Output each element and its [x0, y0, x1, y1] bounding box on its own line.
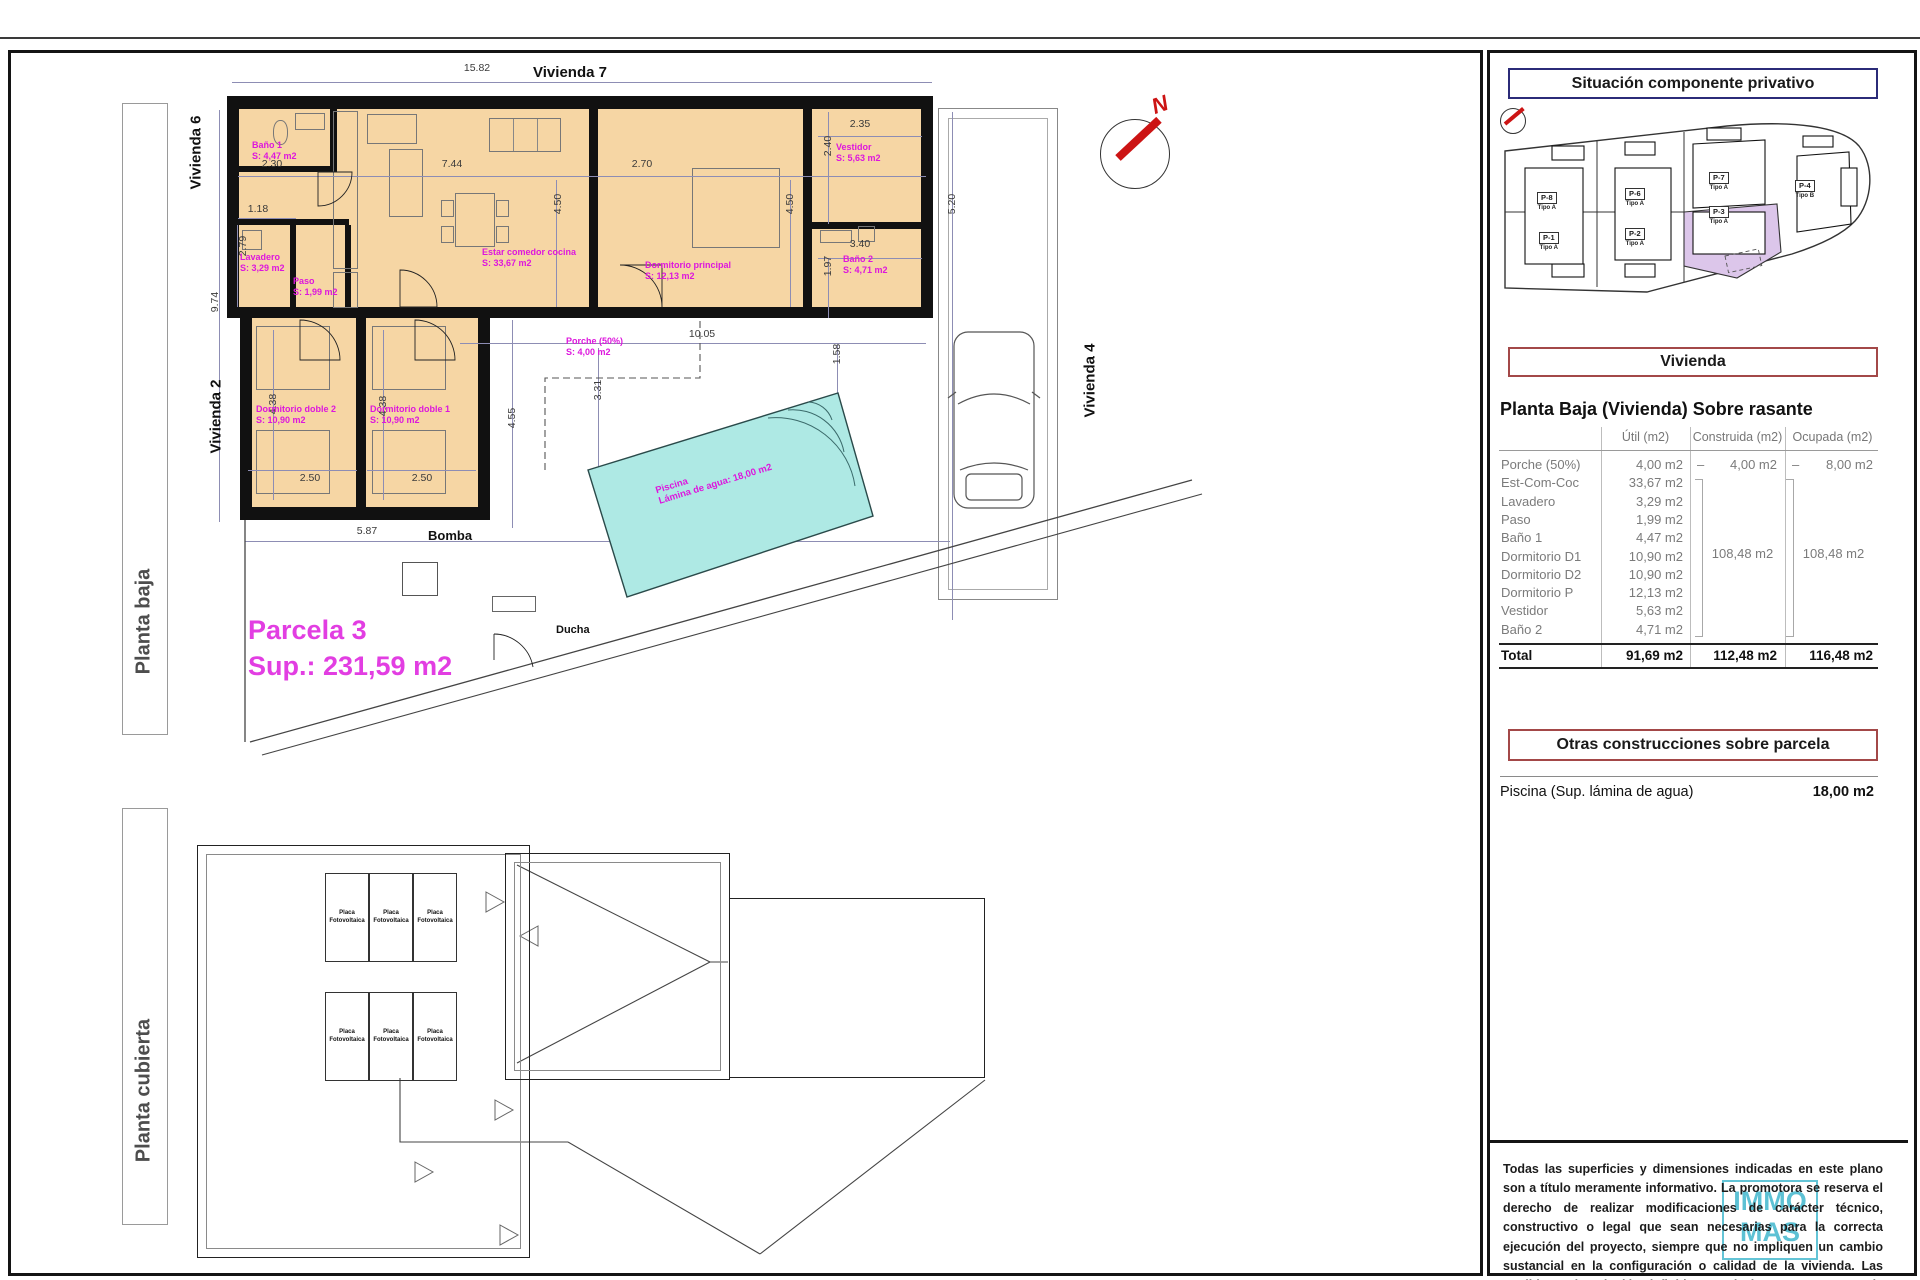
room-area: S: 10,90 m2 — [370, 415, 450, 426]
table-row-name: Dormitorio P — [1501, 585, 1573, 600]
sofa — [489, 118, 561, 152]
room-area: S: 5,63 m2 — [836, 153, 881, 164]
total-bottom-line — [1499, 667, 1878, 669]
parcel-tipo: Tipo A — [1709, 185, 1729, 191]
room-name: Estar comedor cocina — [482, 247, 576, 258]
room-area: S: 4,71 m2 — [843, 265, 888, 276]
table-row-util: 3,29 m2 — [1603, 494, 1683, 509]
table-row-ocupada: 8,00 m2 — [1790, 457, 1873, 472]
table-row-name: Dormitorio D2 — [1501, 567, 1581, 582]
parcel-label-p-3: P-3Tipo A — [1709, 202, 1729, 225]
dining-table — [455, 193, 495, 247]
neighbor-label-vivienda-6: Vivienda 6 — [188, 98, 205, 208]
room-label: VestidorS: 5,63 m2 — [836, 142, 881, 164]
room-area: S: 4,00 m2 — [566, 347, 623, 358]
solar-panel-label: PlacaFotovoltaica — [329, 910, 364, 926]
neighbor-label-vivienda-4: Vivienda 4 — [1082, 321, 1099, 441]
total-top-line — [1499, 643, 1878, 645]
dimension-line — [460, 343, 926, 344]
parcel-tipo: Tipo A — [1539, 245, 1559, 251]
parcel-tipo: Tipo B — [1795, 193, 1815, 199]
site-map: P-8Tipo AP-1Tipo AP-6Tipo AP-2Tipo AP-7T… — [1497, 116, 1901, 306]
parcel-label-p-4: P-4Tipo B — [1795, 176, 1815, 199]
room-name: Baño 2 — [843, 254, 888, 265]
construida-group-brace — [1702, 479, 1703, 637]
room-label: Baño 1S: 4,47 m2 — [252, 140, 297, 162]
table-row-name: Vestidor — [1501, 603, 1548, 618]
dimension-label: 5.87 — [345, 525, 389, 537]
wall — [240, 507, 490, 520]
dimension-label: 10.05 — [680, 328, 724, 340]
dimension-line — [232, 82, 932, 83]
table-header: Útil (m2) — [1603, 430, 1688, 444]
table-row-name: Porche (50%) — [1501, 457, 1580, 472]
room-name: Paso — [293, 276, 338, 287]
disclaimer-divider — [1490, 1140, 1908, 1143]
chair — [496, 226, 509, 243]
table-row-util: 10,90 m2 — [1603, 549, 1683, 564]
bed — [256, 430, 330, 494]
otras-title-box: Otras construcciones sobre parcela — [1508, 729, 1878, 761]
solar-panel: PlacaFotovoltaica — [369, 992, 413, 1081]
dimension-label: 3.40 — [838, 238, 882, 250]
compass-icon — [1100, 119, 1170, 189]
chair — [496, 200, 509, 217]
total-util: 91,69 m2 — [1603, 648, 1683, 663]
dimension-label: 2.70 — [620, 158, 664, 170]
dimension-line — [367, 470, 476, 471]
room-label: Baño 2S: 4,71 m2 — [843, 254, 888, 276]
parcel-label-p-1: P-1Tipo A — [1539, 228, 1559, 251]
dimension-line — [248, 470, 357, 471]
room-name: Baño 1 — [252, 140, 297, 151]
room-area: S: 4,47 m2 — [252, 151, 297, 162]
dimension-line — [238, 218, 296, 219]
table-row-name: Baño 1 — [1501, 530, 1542, 545]
table-row-construida: 4,00 m2 — [1695, 457, 1777, 472]
parcel-tipo: Tipo A — [1537, 205, 1557, 211]
table-row-util: 12,13 m2 — [1603, 585, 1683, 600]
table-column-divider — [1785, 427, 1786, 668]
wall — [921, 96, 933, 318]
table-column-divider — [1601, 427, 1602, 668]
room-label: Estar comedor cocinaS: 33,67 m2 — [482, 247, 576, 269]
bomba-label: Bomba — [428, 528, 472, 543]
total-construida: 112,48 m2 — [1695, 648, 1777, 663]
total-ocupada: 116,48 m2 — [1790, 648, 1873, 663]
table-row-util: 1,99 m2 — [1603, 512, 1683, 527]
roof-right-wing — [729, 898, 985, 1078]
chair — [441, 200, 454, 217]
parcel-tipo: Tipo A — [1625, 201, 1645, 207]
bed — [692, 168, 780, 248]
room-name: Vestidor — [836, 142, 881, 153]
dimension-label: 5.20 — [946, 182, 958, 226]
solar-panel: PlacaFotovoltaica — [369, 873, 413, 962]
bed — [256, 326, 330, 390]
parcel-id: P-8 — [1537, 192, 1557, 204]
roof-hip-block-inner — [514, 862, 721, 1071]
areas-table: Útil (m2)Construida (m2)Ocupada (m2)Porc… — [1499, 427, 1878, 670]
table-row-util: 4,00 m2 — [1603, 457, 1683, 472]
planta-cubierta-label: Planta cubierta — [133, 1001, 156, 1181]
table-header: Construida (m2) — [1692, 430, 1783, 444]
plan-sheet: Planta baja Planta cubierta — [0, 0, 1920, 1280]
parcel-id: P-2 — [1625, 228, 1645, 240]
parcel-id: P-1 — [1539, 232, 1559, 244]
wall — [478, 307, 490, 520]
wall — [240, 307, 252, 520]
room-label: Dormitorio doble 1S: 10,90 m2 — [370, 404, 450, 426]
bathtub — [367, 114, 417, 144]
dimension-label: 7.44 — [430, 158, 474, 170]
chair — [441, 226, 454, 243]
disclaimer-text: Todas las superficies y dimensiones indi… — [1503, 1160, 1883, 1280]
room-name: Lavadero — [240, 252, 285, 263]
otras-divider — [1500, 776, 1878, 777]
table-row-util: 10,90 m2 — [1603, 567, 1683, 582]
table-row-name: Est-Com-Coc — [1501, 475, 1579, 490]
site-map-linework — [1497, 116, 1901, 306]
parcel-label-p-6: P-6Tipo A — [1625, 184, 1645, 207]
room-area: S: 33,67 m2 — [482, 258, 576, 269]
otras-item-value: 18,00 m2 — [1740, 784, 1874, 800]
wall — [589, 107, 598, 307]
table-row-util: 33,67 m2 — [1603, 475, 1683, 490]
parcela-title: Parcela 3 Sup.: 231,59 m2 — [248, 612, 452, 685]
wall — [803, 107, 812, 307]
neighbor-label-vivienda-2: Vivienda 2 — [208, 362, 225, 472]
parcel-label-p-8: P-8Tipo A — [1537, 188, 1557, 211]
kitchen-counter — [333, 111, 358, 269]
table-row-name: Lavadero — [1501, 494, 1555, 509]
table-row-util: 5,63 m2 — [1603, 603, 1683, 618]
dimension-label: 2.35 — [838, 118, 882, 130]
table-column-divider — [1690, 427, 1691, 668]
dimension-line — [245, 541, 950, 542]
room-name: Porche (50%) — [566, 336, 623, 347]
dimension-label: 15.82 — [455, 62, 499, 74]
room-name: Dormitorio doble 2 — [256, 404, 336, 415]
parcel-id: P-7 — [1709, 172, 1729, 184]
parking-inner-outline — [948, 118, 1048, 590]
parcel-tipo: Tipo A — [1625, 241, 1645, 247]
table-row-name: Paso — [1501, 512, 1531, 527]
table-row-util: 4,47 m2 — [1603, 530, 1683, 545]
dimension-line — [238, 176, 926, 177]
solar-panel: PlacaFotovoltaica — [325, 873, 369, 962]
room-label: PasoS: 1,99 m2 — [293, 276, 338, 298]
parcel-tipo: Tipo A — [1709, 219, 1729, 225]
sink — [295, 113, 325, 130]
table-row-name: Baño 2 — [1501, 622, 1542, 637]
sofa — [513, 119, 514, 151]
dimension-label: 2.40 — [822, 124, 834, 168]
parcel-id: P-6 — [1625, 188, 1645, 200]
room-name: Dormitorio principal — [645, 260, 731, 271]
table-header-line — [1499, 450, 1878, 451]
dimension-label: 2.50 — [400, 472, 444, 484]
dimension-label: 4.50 — [784, 182, 796, 226]
sofa — [537, 119, 538, 151]
room-area: S: 10,90 m2 — [256, 415, 336, 426]
solar-panel-label: PlacaFotovoltaica — [373, 1029, 408, 1045]
room-label: Dormitorio principalS: 12,13 m2 — [645, 260, 731, 282]
ocupada-group-brace — [1793, 479, 1794, 637]
sheet-top-rule — [0, 37, 1920, 39]
room-area: S: 1,99 m2 — [293, 287, 338, 298]
parcela-name: Parcela 3 — [248, 612, 452, 648]
dimension-label: 2.50 — [288, 472, 332, 484]
dimension-label: 9.74 — [209, 280, 221, 324]
otras-item-name: Piscina (Sup. lámina de agua) — [1500, 784, 1693, 800]
solar-panel-label: PlacaFotovoltaica — [417, 1029, 452, 1045]
ocupada-group-value: 108,48 m2 — [1796, 546, 1871, 561]
neighbor-label-vivienda-7: Vivienda 7 — [520, 64, 620, 81]
room-name: Dormitorio doble 1 — [370, 404, 450, 415]
room-label: LavaderoS: 3,29 m2 — [240, 252, 285, 274]
kitchen-island — [389, 149, 423, 217]
ducha-label: Ducha — [556, 624, 590, 636]
room-area: S: 3,29 m2 — [240, 263, 285, 274]
total-name: Total — [1501, 648, 1532, 663]
construida-group-value: 108,48 m2 — [1705, 546, 1780, 561]
dimension-label: 1.58 — [831, 332, 843, 376]
solar-panel: PlacaFotovoltaica — [413, 992, 457, 1081]
solar-panel-label: PlacaFotovoltaica — [329, 1029, 364, 1045]
room-label: Porche (50%)S: 4,00 m2 — [566, 336, 623, 358]
solar-panel-label: PlacaFotovoltaica — [373, 910, 408, 926]
table-header: Ocupada (m2) — [1787, 430, 1878, 444]
parcel-label-p-2: P-2Tipo A — [1625, 224, 1645, 247]
dimension-label: 3.31 — [592, 368, 604, 412]
dimension-label: 4.50 — [552, 182, 564, 226]
vivienda-title-box: Vivienda — [1508, 347, 1878, 377]
dimension-label: 4.55 — [506, 396, 518, 440]
solar-panel-label: PlacaFotovoltaica — [417, 910, 452, 926]
parcel-id: P-4 — [1795, 180, 1815, 192]
parcel-label-p-7: P-7Tipo A — [1709, 168, 1729, 191]
dimension-label: 1.18 — [236, 203, 280, 215]
room-label: Dormitorio doble 2S: 10,90 m2 — [256, 404, 336, 426]
table-row-util: 4,71 m2 — [1603, 622, 1683, 637]
parcela-area: Sup.: 231,59 m2 — [248, 648, 452, 684]
shower-tray — [492, 596, 536, 612]
vivienda-subtitle: Planta Baja (Vivienda) Sobre rasante — [1500, 399, 1813, 420]
solar-panel: PlacaFotovoltaica — [325, 992, 369, 1081]
planta-baja-label: Planta baja — [133, 542, 156, 702]
wall — [356, 318, 366, 507]
pump-box — [402, 562, 438, 596]
solar-panel: PlacaFotovoltaica — [413, 873, 457, 962]
dimension-label: 1.97 — [822, 244, 834, 288]
table-row-name: Dormitorio D1 — [1501, 549, 1581, 564]
parcel-id: P-3 — [1709, 206, 1729, 218]
situacion-title-box: Situación componente privativo — [1508, 68, 1878, 99]
room-area: S: 12,13 m2 — [645, 271, 731, 282]
